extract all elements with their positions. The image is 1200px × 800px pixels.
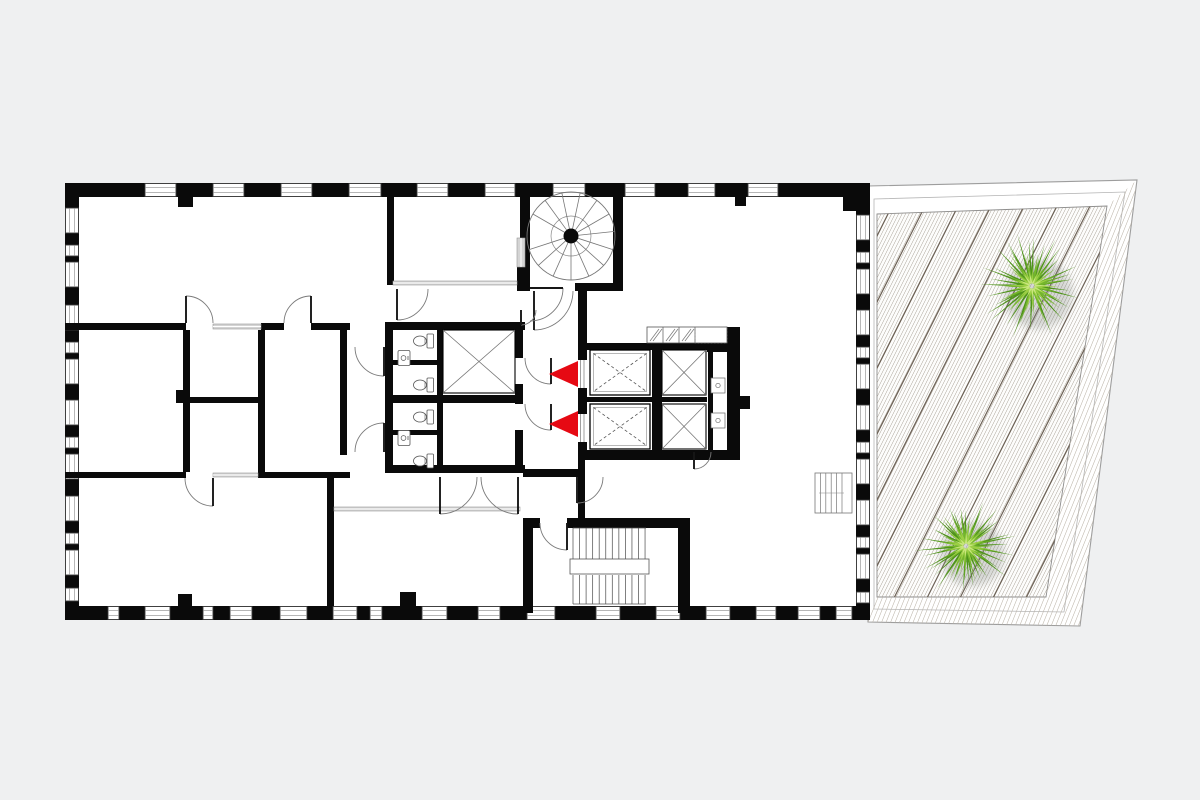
floor-plan [0, 0, 1200, 800]
side-steps [815, 473, 852, 513]
floor-plan-stage [0, 0, 1200, 800]
